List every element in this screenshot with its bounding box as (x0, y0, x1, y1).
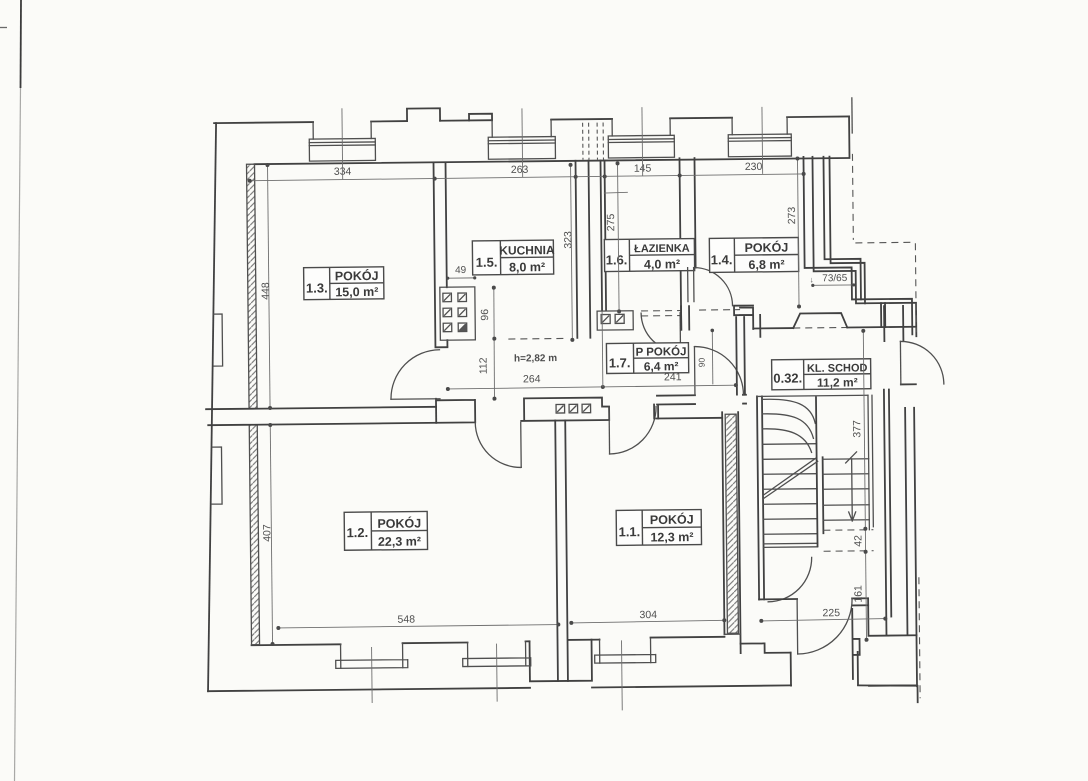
svg-text:22,3 m²: 22,3 m² (378, 534, 421, 548)
svg-text:1.1.: 1.1. (618, 524, 640, 539)
svg-text:548: 548 (397, 614, 415, 626)
svg-text:1.6.: 1.6. (606, 252, 628, 267)
svg-text:407: 407 (261, 524, 273, 542)
svg-text:12,3 m²: 12,3 m² (650, 530, 693, 544)
svg-text:49: 49 (455, 265, 467, 276)
svg-text:304: 304 (639, 609, 657, 621)
svg-text:161: 161 (852, 585, 864, 603)
svg-text:P POKÓJ: P POKÓJ (635, 345, 686, 359)
svg-text:90: 90 (697, 357, 707, 367)
svg-text:1.3.: 1.3. (306, 280, 328, 295)
svg-text:POKÓJ: POKÓJ (744, 240, 788, 255)
svg-text:1.2.: 1.2. (346, 525, 368, 540)
svg-text:96: 96 (479, 309, 491, 321)
svg-text:377: 377 (851, 420, 863, 438)
svg-text:263: 263 (511, 164, 529, 176)
svg-text:↓: ↓ (810, 275, 814, 284)
svg-text:11,2 m²: 11,2 m² (817, 375, 858, 389)
svg-text:73/65: 73/65 (822, 273, 848, 284)
svg-text:KUCHNIA: KUCHNIA (499, 243, 555, 258)
svg-text:42: 42 (852, 535, 864, 547)
svg-text:8,0 m²: 8,0 m² (509, 260, 545, 274)
svg-text:230: 230 (745, 161, 763, 173)
svg-text:1.7.: 1.7. (609, 355, 631, 370)
svg-text:273: 273 (786, 207, 798, 225)
svg-text:KL. SCHOD: KL. SCHOD (807, 362, 868, 375)
svg-text:225: 225 (822, 607, 840, 619)
svg-text:15,0 m²: 15,0 m² (335, 285, 378, 299)
svg-text:h=2,82 m: h=2,82 m (514, 353, 557, 364)
svg-text:1.5.: 1.5. (476, 255, 498, 270)
svg-text:1.4.: 1.4. (711, 252, 733, 267)
svg-text:241: 241 (664, 371, 682, 383)
svg-text:0.32.: 0.32. (773, 370, 802, 385)
svg-text:264: 264 (523, 373, 541, 385)
svg-text:POKÓJ: POKÓJ (377, 515, 421, 530)
svg-text:112: 112 (478, 357, 490, 374)
svg-text:323: 323 (562, 231, 574, 249)
svg-text:275: 275 (605, 213, 617, 231)
svg-text:POKÓJ: POKÓJ (335, 268, 379, 283)
svg-text:POKÓJ: POKÓJ (650, 512, 694, 527)
svg-text:ŁAZIENKA: ŁAZIENKA (634, 243, 690, 256)
svg-text:6,8 m²: 6,8 m² (748, 258, 784, 272)
svg-text:4,0 m²: 4,0 m² (644, 257, 680, 271)
svg-text:448: 448 (260, 282, 272, 300)
